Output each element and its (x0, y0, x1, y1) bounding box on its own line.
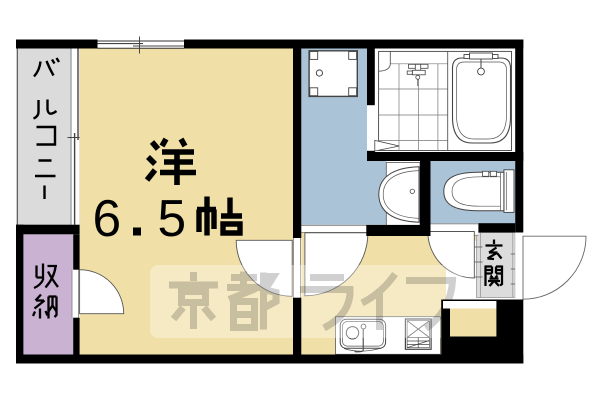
svg-text:6: 6 (93, 189, 122, 247)
svg-text:5: 5 (158, 189, 187, 247)
